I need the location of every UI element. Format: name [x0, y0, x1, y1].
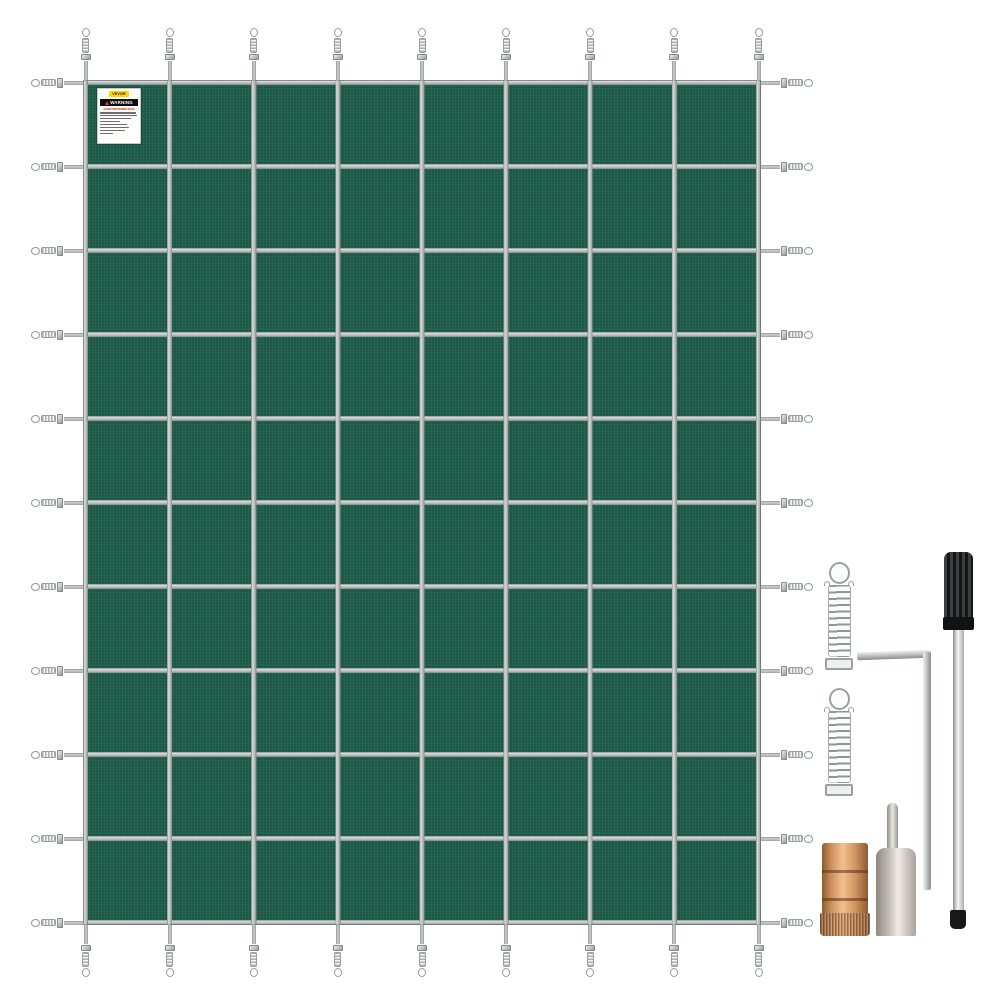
strap-end-spring-icon — [587, 952, 594, 967]
strap-end-loop-icon — [804, 751, 813, 759]
strap-end-loop-icon — [804, 163, 813, 171]
strap-end-loop-icon — [31, 667, 40, 675]
strap-buckle-icon — [57, 918, 63, 928]
strap-segment — [761, 753, 780, 757]
strap-end-loop-icon — [586, 968, 594, 977]
anchor-groove — [822, 870, 868, 873]
strap-end-loop-icon — [804, 331, 813, 339]
strap-end-loop-icon — [670, 968, 678, 977]
strap-end-spring-icon — [41, 583, 56, 590]
strap-segment — [64, 753, 83, 757]
strap-end-spring-icon — [503, 952, 510, 967]
strap-segment — [761, 249, 780, 253]
strap-buckle-icon — [57, 162, 63, 172]
strap-end-loop-icon — [804, 415, 813, 423]
strap-anchor-end — [584, 28, 596, 80]
strap-anchor-end — [761, 161, 813, 173]
strap-end-loop-icon — [31, 79, 40, 87]
strap-anchor-end — [164, 925, 176, 977]
strap-anchor-end — [248, 925, 260, 977]
strap-buckle-icon — [57, 750, 63, 760]
strap-end-spring-icon — [671, 952, 678, 967]
rod-handle — [944, 552, 973, 620]
strap-end-spring-icon — [250, 38, 257, 53]
strap-buckle-icon — [57, 330, 63, 340]
strap-end-spring-icon — [755, 952, 762, 967]
strap-buckle-icon — [669, 945, 679, 951]
strap-anchor-end — [31, 917, 83, 929]
strap-anchor-end — [31, 497, 83, 509]
spring-base-clip-icon — [825, 784, 853, 796]
strap-anchor-end — [31, 749, 83, 761]
strap-anchor-end — [416, 28, 428, 80]
brass-anchor — [822, 843, 868, 936]
strap-buckle-icon — [781, 834, 787, 844]
brass-anchor-body — [822, 843, 868, 915]
strap-segment — [588, 61, 592, 80]
strap-end-loop-icon — [31, 919, 40, 927]
strap-anchor-end — [761, 833, 813, 845]
strap-buckle-icon — [501, 945, 511, 951]
strap-anchor-end — [416, 925, 428, 977]
strap-end-spring-icon — [788, 163, 803, 170]
strap-end-spring-icon — [788, 247, 803, 254]
strap-segment — [761, 165, 780, 169]
strap-buckle-icon — [669, 54, 679, 60]
strap-buckle-icon — [57, 498, 63, 508]
strap-buckle-icon — [165, 54, 175, 60]
fine-print — [100, 112, 138, 134]
strap-buckle-icon — [417, 54, 427, 60]
strap-end-spring-icon — [166, 38, 173, 53]
strap-segment — [64, 585, 83, 589]
strap-segment — [420, 61, 424, 80]
strap-buckle-icon — [781, 162, 787, 172]
strap-segment — [761, 417, 780, 421]
strap-end-loop-icon — [166, 968, 174, 977]
strap-end-spring-icon — [788, 499, 803, 506]
strap-buckle-icon — [57, 414, 63, 424]
warning-bar: WARNING — [100, 99, 138, 106]
rod-collar — [943, 617, 974, 630]
spring-coil-icon — [828, 711, 851, 783]
strap-anchor-end — [761, 413, 813, 425]
warning-label: VEVOR WARNING AVOID DROWNING RISK — [97, 88, 141, 144]
strap-end-spring-icon — [334, 952, 341, 967]
strap-end-spring-icon — [82, 38, 89, 53]
strap-anchor-end — [248, 28, 260, 80]
brand-badge: VEVOR — [109, 91, 129, 97]
strap-segment — [504, 61, 508, 80]
strap-anchor-end — [332, 925, 344, 977]
strap-anchor-end — [31, 245, 83, 257]
strap-buckle-icon — [781, 414, 787, 424]
strap-buckle-icon — [333, 54, 343, 60]
strap-segment — [252, 925, 256, 944]
strap-end-loop-icon — [31, 499, 40, 507]
strap-anchor-end — [164, 28, 176, 80]
strap-end-spring-icon — [41, 919, 56, 926]
strap-segment — [64, 837, 83, 841]
strap-end-loop-icon — [418, 28, 426, 37]
strap-buckle-icon — [333, 945, 343, 951]
strap-end-loop-icon — [755, 968, 763, 977]
strap-end-spring-icon — [41, 79, 56, 86]
strap-buckle-icon — [57, 666, 63, 676]
strap-end-spring-icon — [503, 38, 510, 53]
strap-anchor-end — [31, 161, 83, 173]
hex-key-arm — [857, 650, 931, 661]
strap-anchor-end — [668, 28, 680, 80]
anchor-pin — [887, 803, 898, 851]
strap-end-loop-icon — [804, 667, 813, 675]
pool-cover-mesh: VEVOR WARNING AVOID DROWNING RISK — [83, 80, 761, 925]
strap-end-spring-icon — [41, 163, 56, 170]
strap-anchor-end — [31, 581, 83, 593]
strap-anchor-end — [31, 833, 83, 845]
strap-end-loop-icon — [166, 28, 174, 37]
strap-anchor-end — [668, 925, 680, 977]
strap-end-spring-icon — [788, 583, 803, 590]
strap-end-spring-icon — [41, 415, 56, 422]
strap-segment — [336, 925, 340, 944]
strap-end-loop-icon — [804, 835, 813, 843]
strap-buckle-icon — [165, 945, 175, 951]
strap-buckle-icon — [754, 54, 764, 60]
strap-segment — [168, 925, 172, 944]
strap-anchor-end — [761, 917, 813, 929]
strap-segment — [757, 61, 761, 80]
strap-segment — [84, 925, 88, 944]
strap-end-loop-icon — [418, 968, 426, 977]
strap-buckle-icon — [57, 246, 63, 256]
strap-anchor-end — [80, 925, 92, 977]
strap-segment — [761, 501, 780, 505]
strap-buckle-icon — [585, 945, 595, 951]
strap-end-spring-icon — [671, 38, 678, 53]
strap-segment — [64, 417, 83, 421]
strap-end-spring-icon — [788, 919, 803, 926]
strap-segment — [761, 921, 780, 925]
strap-segment — [64, 165, 83, 169]
strap-segment — [336, 61, 340, 80]
warning-title: WARNING — [110, 99, 133, 106]
brass-anchor-knurled-base — [820, 913, 870, 936]
strap-end-loop-icon — [31, 163, 40, 171]
anchor-groove — [822, 898, 868, 901]
strap-buckle-icon — [57, 834, 63, 844]
strap-segment — [761, 81, 780, 85]
strap-end-loop-icon — [670, 28, 678, 37]
strap-buckle-icon — [781, 918, 787, 928]
strap-buckle-icon — [754, 945, 764, 951]
strap-end-spring-icon — [334, 38, 341, 53]
strap-end-loop-icon — [250, 968, 258, 977]
strap-buckle-icon — [781, 246, 787, 256]
anchor-pin-body — [876, 848, 916, 936]
strap-end-loop-icon — [755, 28, 763, 37]
strap-segment — [64, 669, 83, 673]
anchor-with-pin — [876, 803, 916, 936]
strap-buckle-icon — [417, 945, 427, 951]
strap-anchor-end — [761, 329, 813, 341]
strap-end-spring-icon — [788, 331, 803, 338]
strap-anchor-end — [761, 497, 813, 509]
strap-segment — [672, 61, 676, 80]
strap-end-spring-icon — [587, 38, 594, 53]
strap-segment — [761, 669, 780, 673]
strap-end-spring-icon — [41, 667, 56, 674]
strap-buckle-icon — [585, 54, 595, 60]
strap-anchor-end — [500, 925, 512, 977]
strap-segment — [672, 925, 676, 944]
strap-end-spring-icon — [788, 835, 803, 842]
rod-shaft — [953, 630, 964, 912]
strap-anchor-end — [761, 581, 813, 593]
strap-buckle-icon — [249, 54, 259, 60]
strap-segment — [588, 925, 592, 944]
strap-buckle-icon — [781, 750, 787, 760]
strap-end-loop-icon — [502, 968, 510, 977]
strap-segment — [168, 61, 172, 80]
strap-buckle-icon — [781, 582, 787, 592]
strap-end-spring-icon — [82, 952, 89, 967]
strap-anchor-end — [31, 329, 83, 341]
strap-end-loop-icon — [804, 79, 813, 87]
strap-buckle-icon — [501, 54, 511, 60]
strap-end-loop-icon — [250, 28, 258, 37]
strap-buckle-icon — [781, 330, 787, 340]
strap-anchor-end — [31, 77, 83, 89]
strap-end-spring-icon — [41, 499, 56, 506]
hex-key-leg — [923, 652, 931, 890]
strap-buckle-icon — [781, 78, 787, 88]
strap-end-loop-icon — [804, 247, 813, 255]
strap-segment — [64, 501, 83, 505]
spring-base-clip-icon — [825, 658, 853, 670]
strap-segment — [64, 249, 83, 253]
strap-end-loop-icon — [334, 968, 342, 977]
strap-end-loop-icon — [31, 415, 40, 423]
strap-end-loop-icon — [31, 583, 40, 591]
strap-end-spring-icon — [41, 835, 56, 842]
strap-anchor-end — [584, 925, 596, 977]
warning-triangle-icon — [105, 101, 109, 105]
strap-anchor-end — [753, 28, 765, 80]
strap-segment — [84, 61, 88, 80]
strap-end-spring-icon — [755, 38, 762, 53]
strap-segment — [64, 333, 83, 337]
strap-segment — [761, 837, 780, 841]
strap-end-loop-icon — [31, 331, 40, 339]
strap-anchor-end — [31, 665, 83, 677]
product-photo-stage: VEVOR WARNING AVOID DROWNING RISK — [0, 0, 1000, 1000]
strap-end-loop-icon — [82, 968, 90, 977]
cover-spring — [822, 688, 856, 796]
strap-segment — [761, 585, 780, 589]
strap-buckle-icon — [781, 666, 787, 676]
strap-end-loop-icon — [82, 28, 90, 37]
strap-anchor-end — [80, 28, 92, 80]
strap-end-spring-icon — [41, 751, 56, 758]
strap-anchor-end — [761, 77, 813, 89]
strap-end-loop-icon — [804, 583, 813, 591]
strap-end-spring-icon — [41, 331, 56, 338]
strap-end-loop-icon — [804, 499, 813, 507]
strap-buckle-icon — [57, 582, 63, 592]
strap-anchor-end — [753, 925, 765, 977]
strap-buckle-icon — [81, 54, 91, 60]
strap-end-loop-icon — [502, 28, 510, 37]
cover-spring — [822, 562, 856, 670]
strap-anchor-end — [761, 665, 813, 677]
strap-end-spring-icon — [419, 952, 426, 967]
strap-segment — [252, 61, 256, 80]
strap-anchor-end — [500, 28, 512, 80]
strap-segment — [757, 925, 761, 944]
strap-end-spring-icon — [419, 38, 426, 53]
strap-end-spring-icon — [788, 667, 803, 674]
strap-segment — [420, 925, 424, 944]
strap-anchor-end — [761, 245, 813, 257]
strap-segment — [761, 333, 780, 337]
strap-end-loop-icon — [31, 751, 40, 759]
strap-end-spring-icon — [788, 415, 803, 422]
strap-end-loop-icon — [804, 919, 813, 927]
strap-anchor-end — [761, 749, 813, 761]
strap-buckle-icon — [249, 945, 259, 951]
strap-end-loop-icon — [31, 835, 40, 843]
strap-end-loop-icon — [586, 28, 594, 37]
strap-segment — [64, 81, 83, 85]
strap-end-spring-icon — [41, 247, 56, 254]
strap-anchor-end — [332, 28, 344, 80]
strap-buckle-icon — [81, 945, 91, 951]
strap-segment — [64, 921, 83, 925]
strap-end-loop-icon — [334, 28, 342, 37]
spring-coil-icon — [828, 585, 851, 657]
rod-end-cap — [950, 910, 966, 929]
strap-buckle-icon — [57, 78, 63, 88]
strap-end-spring-icon — [250, 952, 257, 967]
strap-buckle-icon — [781, 498, 787, 508]
strap-end-spring-icon — [788, 751, 803, 758]
strap-segment — [504, 925, 508, 944]
warning-subtitle: AVOID DROWNING RISK — [103, 108, 134, 111]
strap-anchor-end — [31, 413, 83, 425]
strap-end-loop-icon — [31, 247, 40, 255]
strap-end-spring-icon — [788, 79, 803, 86]
strap-end-spring-icon — [166, 952, 173, 967]
